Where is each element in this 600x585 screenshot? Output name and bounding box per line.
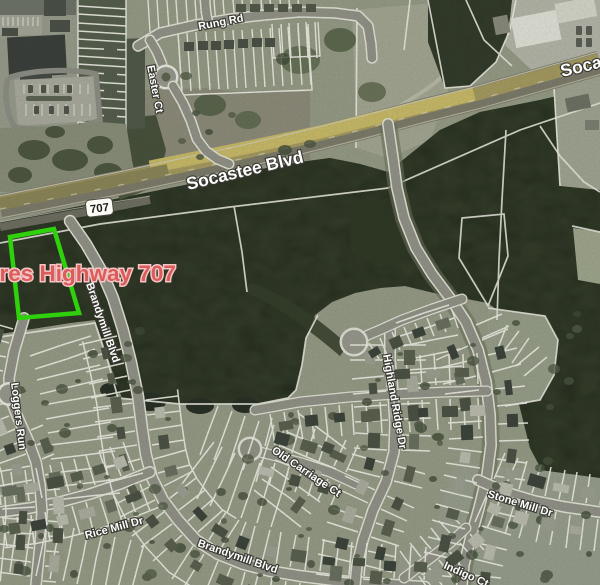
svg-text:cres Highway 707: cres Highway 707 xyxy=(0,261,176,286)
svg-text:707: 707 xyxy=(89,202,110,216)
